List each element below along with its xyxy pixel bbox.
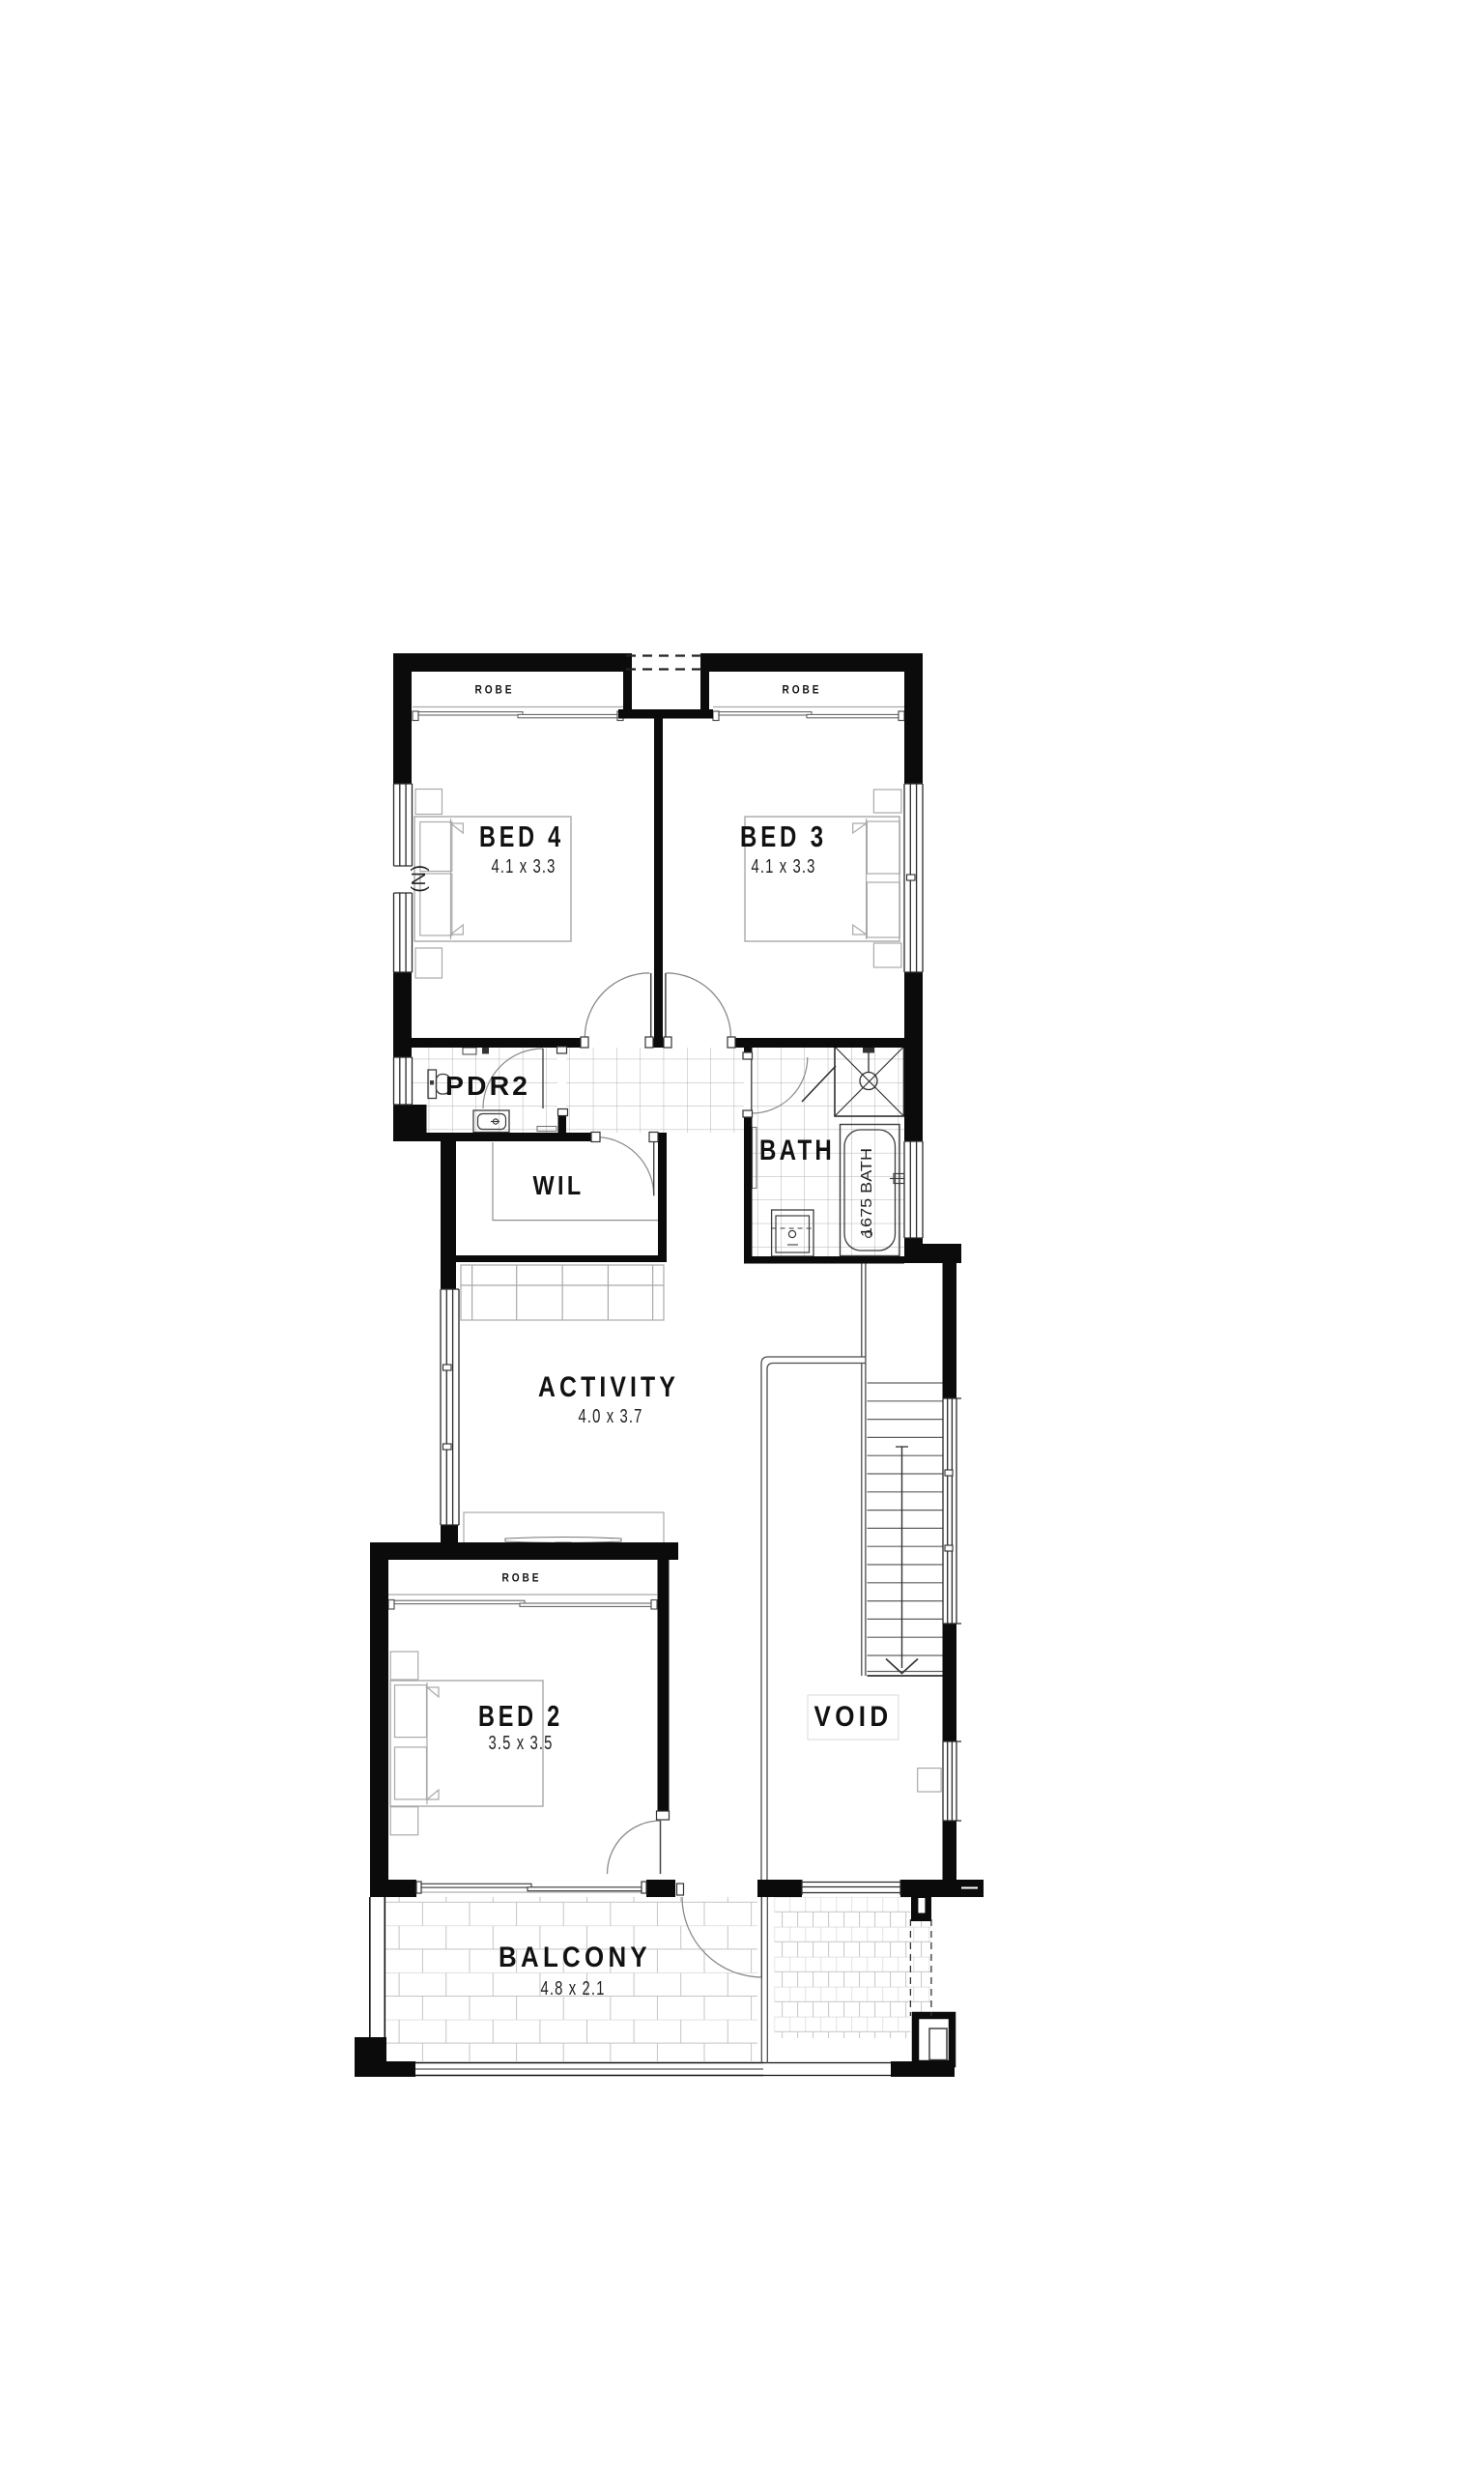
svg-text:ROBE: ROBE bbox=[475, 683, 515, 697]
svg-text:BED 2: BED 2 bbox=[478, 1699, 563, 1733]
svg-text:(N): (N) bbox=[409, 864, 430, 892]
svg-text:ACTIVITY: ACTIVITY bbox=[538, 1371, 679, 1403]
svg-text:4.1 x 3.3: 4.1 x 3.3 bbox=[752, 856, 816, 877]
svg-text:ROBE: ROBE bbox=[783, 683, 822, 697]
svg-text:BALCONY: BALCONY bbox=[499, 1942, 651, 1973]
svg-text:WIL: WIL bbox=[533, 1170, 585, 1200]
svg-text:4.0 x 3.7: 4.0 x 3.7 bbox=[579, 1406, 643, 1427]
svg-text:3.5 x 3.5: 3.5 x 3.5 bbox=[489, 1733, 554, 1754]
svg-text:VOID: VOID bbox=[814, 1701, 893, 1733]
svg-text:BED 4: BED 4 bbox=[479, 820, 564, 853]
svg-text:4.8 x 2.1: 4.8 x 2.1 bbox=[541, 1978, 606, 1999]
svg-text:ROBE: ROBE bbox=[502, 1571, 542, 1585]
svg-text:4.1 x 3.3: 4.1 x 3.3 bbox=[492, 856, 556, 877]
svg-text:PDR2: PDR2 bbox=[445, 1071, 530, 1101]
svg-text:BED 3: BED 3 bbox=[740, 820, 827, 853]
svg-text:BATH: BATH bbox=[759, 1135, 835, 1166]
svg-text:1675 BATH: 1675 BATH bbox=[859, 1148, 875, 1237]
